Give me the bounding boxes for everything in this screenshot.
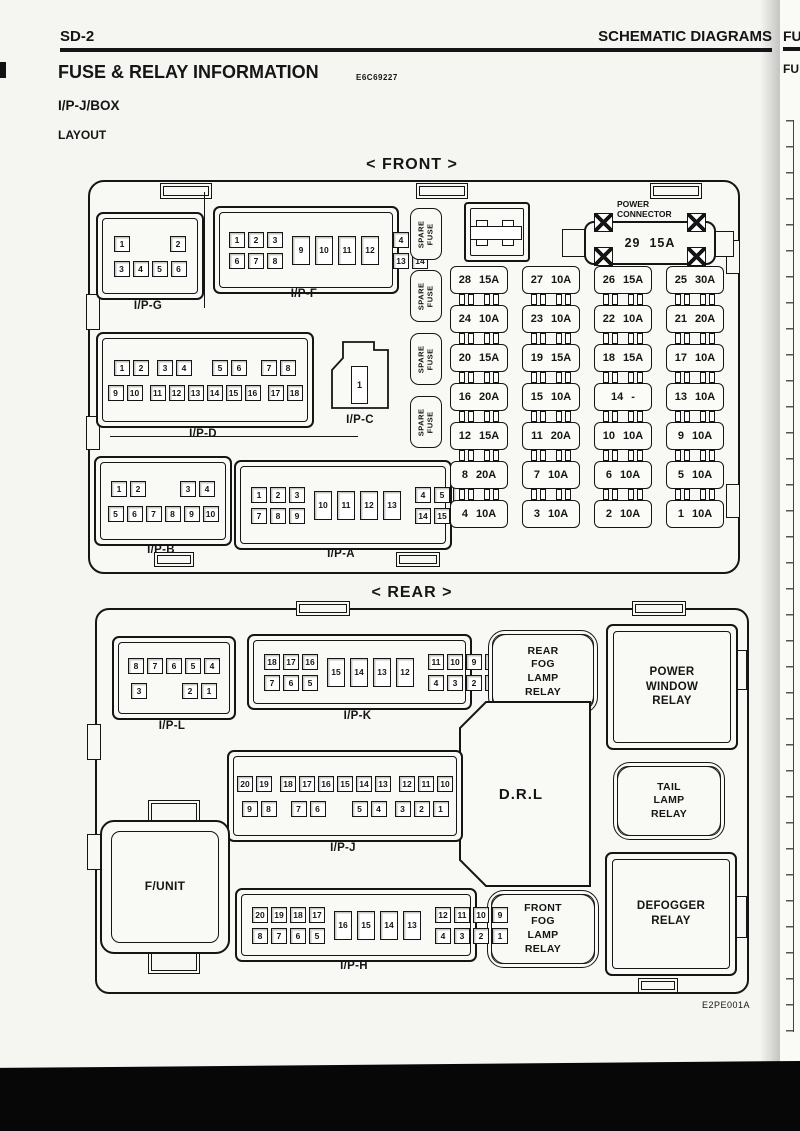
header-rule [60,48,772,52]
pin-8: 8 [252,928,268,944]
pin-14: 14 [380,911,398,940]
fuse-17: 1710A [666,344,724,372]
fuse-leg [603,333,618,344]
pin-5: 5 [108,506,124,522]
spare-fuse-label: SPARE FUSE [417,345,436,373]
fuse-column: 2530A2120A1710A1310A910A510A110A [666,266,724,528]
fuse-legs [666,450,724,461]
pin-10: 10 [315,236,333,265]
fuse-legs [522,489,580,500]
pin-14: 14 [415,508,431,524]
fuse-leg [484,372,499,383]
pin-3: 3 [395,801,411,817]
pin-12: 12 [399,776,415,792]
pin-5: 5 [185,658,201,674]
puller-bar [470,226,522,240]
pin-11: 11 [428,654,444,670]
power-connector-label: POWER CONNECTOR [617,199,672,219]
fuse-leg [531,333,546,344]
fuse-leg [700,333,715,344]
pin-4: 4 [176,360,192,376]
next-page-text-top: FU [783,28,800,44]
pin-5: 5 [302,675,318,691]
pin-9: 9 [466,654,482,670]
rear-bottom-tab [638,978,678,993]
pin-8: 8 [165,506,181,522]
fuse-leg [459,333,474,344]
fuse-leg [700,411,715,422]
fuse-legs [522,294,580,305]
pin-10: 10 [437,776,453,792]
pin-4: 4 [415,487,431,503]
fuse-1: 110A [666,500,724,528]
power-connector-value: 29 15A [625,235,676,251]
pin-5: 5 [152,261,168,277]
pin-13: 13 [393,253,409,269]
pin-2: 2 [133,360,149,376]
fuse-6: 610A [594,461,652,489]
connector-ipf: 123 678 9101112 45 1314 [213,206,399,294]
fuse-leg [675,372,690,383]
fuse-leg [459,294,474,305]
connector-ipl: 87654 3 21 [112,636,236,720]
fuse-leg [700,489,715,500]
fuse-legs [522,450,580,461]
fuse-leg [484,489,499,500]
pin-11: 11 [150,385,166,401]
pin-20: 20 [252,907,268,923]
pin-13: 13 [373,658,391,687]
pin-6: 6 [283,675,299,691]
fuse-leg [603,372,618,383]
pin-11: 11 [338,236,356,265]
fuse-leg [484,333,499,344]
fuse-11: 1120A [522,422,580,450]
connector-clip-icon [687,213,706,232]
fuse-leg [675,411,690,422]
fuse-15: 1510A [522,383,580,411]
fuse-leg [556,372,571,383]
fuse-leg [556,294,571,305]
mount-tab [396,552,440,567]
connector-ipk: 181716 765 15141312 111098 4321 [247,634,472,710]
fuse-leg [628,411,643,422]
connector-ipd: 12 34 56 78 910 111213141516 1718 [96,332,314,428]
pin-13: 13 [383,491,401,520]
pin-15: 15 [337,776,353,792]
pin-13: 13 [403,911,421,940]
fuse-leg [603,489,618,500]
fuse-legs [666,294,724,305]
fuse-legs [522,372,580,383]
fuse-leg [628,489,643,500]
fuse-23: 2310A [522,305,580,333]
fuse-legs [594,372,652,383]
funit-label: F/UNIT [145,879,185,895]
pin-9: 9 [108,385,124,401]
connector-label-ipl: I/P-L [112,720,232,732]
fuse-legs [594,333,652,344]
pin-6: 6 [310,801,326,817]
fuse-leg [531,372,546,383]
pin-3: 3 [131,683,147,699]
pin-4: 4 [393,232,409,248]
pin-6: 6 [290,928,306,944]
pin-16: 16 [302,654,318,670]
connector-clip-icon [687,247,706,266]
fuse-12: 1215A [450,422,508,450]
fuse-leg [628,333,643,344]
fuse-legs [450,489,508,500]
mount-tab [154,552,194,567]
pin-10: 10 [314,491,332,520]
pin-12: 12 [361,236,379,265]
fuse-20: 2015A [450,344,508,372]
pin-7: 7 [147,658,163,674]
pin-7: 7 [251,508,267,524]
pin-7: 7 [146,506,162,522]
fuse-leg [556,450,571,461]
pin-3: 3 [267,232,283,248]
fuse-leg [531,489,546,500]
fuse-leg [700,372,715,383]
pin-8: 8 [267,253,283,269]
pin-9: 9 [292,236,310,265]
fuse-3: 310A [522,500,580,528]
fuse-leg [700,450,715,461]
pin-11: 11 [337,491,355,520]
fuse-legs [666,372,724,383]
fuse-22: 2210A [594,305,652,333]
pin-5: 5 [352,801,368,817]
connector-label-ipd: I/P-D [96,428,310,440]
pin-17: 17 [283,654,299,670]
pin-8: 8 [280,360,296,376]
pin-20: 20 [237,776,253,792]
fuse-7: 710A [522,461,580,489]
fuse-21: 2120A [666,305,724,333]
pin-6: 6 [171,261,187,277]
divider-line [204,192,205,308]
connector-label-ipg: I/P-G [96,300,200,312]
figure-code: E2PE001A [640,1000,750,1010]
pin-18: 18 [290,907,306,923]
pin-7: 7 [248,253,264,269]
section-label: LAYOUT [58,128,106,142]
fuse-legs [666,489,724,500]
fuse-25: 2530A [666,266,724,294]
pin-18: 18 [280,776,296,792]
fuse-leg [459,489,474,500]
pin-2: 2 [248,232,264,248]
pin-18: 18 [287,385,303,401]
next-page-table-edge [786,120,794,1032]
pin-9: 9 [242,801,258,817]
spare-fuse-label: SPARE FUSE [417,220,436,248]
pin-9: 9 [184,506,200,522]
pin-14: 14 [207,385,223,401]
spare-fuse-slot: SPARE FUSE [410,270,442,322]
relay-defogger: DEFOGGER RELAY [605,852,737,976]
fuse-2: 210A [594,500,652,528]
pin-4: 4 [428,675,444,691]
fuse-legs [666,411,724,422]
pin-6: 6 [231,360,247,376]
doc-subtitle: I/P-J/BOX [58,98,120,113]
funit: F/UNIT [100,820,230,954]
spare-fuse-label: SPARE FUSE [417,282,436,310]
pin-2: 2 [414,801,430,817]
connector-ipj: 2019 181716151413 121110 98 76 54 321 [227,750,463,842]
pin-16: 16 [245,385,261,401]
fuse-leg [628,450,643,461]
pin-10: 10 [127,385,143,401]
pin-9: 9 [492,907,508,923]
relay-power-window-label: POWER WINDOW RELAY [646,665,698,710]
pin-2: 2 [170,236,186,252]
fuse-5: 510A [666,461,724,489]
pin-3: 3 [447,675,463,691]
fuse-9: 910A [666,422,724,450]
pin-17: 17 [268,385,284,401]
scan-edge-mark [0,62,6,78]
pin-11: 11 [454,907,470,923]
relay-defogger-label: DEFOGGER RELAY [637,899,705,929]
pin-2: 2 [130,481,146,497]
pin-9: 9 [289,508,305,524]
pin-10: 10 [473,907,489,923]
pin-1: 1 [351,366,368,404]
next-page-text-bottom: FU [783,62,799,76]
pin-2: 2 [466,675,482,691]
fuse-column: 2815A2410A2015A1620A1215A820A410A [450,266,508,528]
pin-16: 16 [318,776,334,792]
pin-4: 4 [435,928,451,944]
fuse-leg [603,411,618,422]
pin-15: 15 [434,508,450,524]
fuse-10: 1010A [594,422,652,450]
pin-3: 3 [289,487,305,503]
pin-8: 8 [270,508,286,524]
pin-3: 3 [157,360,173,376]
pin-3: 3 [180,481,196,497]
fuse-legs [450,333,508,344]
fuse-leg [603,450,618,461]
pin-10: 10 [447,654,463,670]
front-top-tab [650,183,702,199]
fuse-leg [531,450,546,461]
page-number: SD-2 [60,28,94,45]
pin-7: 7 [264,675,280,691]
pin-13: 13 [188,385,204,401]
fuse-leg [603,294,618,305]
pin-1: 1 [201,683,217,699]
fuse-18: 1815A [594,344,652,372]
fuse-27: 2710A [522,266,580,294]
fuse-24: 2410A [450,305,508,333]
pin-11: 11 [418,776,434,792]
pin-1: 1 [114,360,130,376]
pin-7: 7 [291,801,307,817]
fuse-legs [594,450,652,461]
pin-8: 8 [128,658,144,674]
fuse-14: 14- [594,383,652,411]
relay-front-fog-label: FRONT FOG LAMP RELAY [524,902,562,957]
pin-13: 13 [375,776,391,792]
fuse-legs [450,450,508,461]
spare-fuse-slot: SPARE FUSE [410,333,442,385]
fuse-column: 2710A2310A1915A1510A1120A710A310A [522,266,580,528]
pin-6: 6 [166,658,182,674]
fuse-leg [556,489,571,500]
pin-5: 5 [309,928,325,944]
connector-ipg: 12 3456 [96,212,204,300]
pin-1: 1 [251,487,267,503]
fuse-leg [459,411,474,422]
rear-left-tab [87,834,101,870]
fuse-legs [594,489,652,500]
fuse-leg [484,294,499,305]
pin-15: 15 [226,385,242,401]
pin-14: 14 [350,658,368,687]
pin-3: 3 [114,261,130,277]
connector-ipb: 12 34 5678910 [94,456,232,546]
pin-19: 19 [271,907,287,923]
fuse-legs [522,411,580,422]
fuse-leg [556,411,571,422]
scan-black-band [0,1061,800,1131]
fuse-leg [484,411,499,422]
connector-label-ipf: I/P-F [213,288,395,300]
fuse-legs [594,411,652,422]
fuse-leg [531,294,546,305]
fuse-leg [675,450,690,461]
relay-rear-fog-label: REAR FOG LAMP RELAY [525,645,561,700]
fuse-leg [700,294,715,305]
pin-1: 1 [229,232,245,248]
fuse-legs [594,294,652,305]
front-title: < FRONT > [300,156,524,174]
rear-top-tab [296,601,350,616]
pin-17: 17 [309,907,325,923]
connector-label-ipc: I/P-C [324,414,396,426]
fuse-leg [675,294,690,305]
pin-4: 4 [371,801,387,817]
pin-1: 1 [492,928,508,944]
connector-clip-icon [594,247,613,266]
fuse-16: 1620A [450,383,508,411]
fuse-leg [459,372,474,383]
pin-5: 5 [212,360,228,376]
pin-8: 8 [261,801,277,817]
pin-17: 17 [299,776,315,792]
fuse-legs [522,333,580,344]
spare-fuse-label: SPARE FUSE [417,408,436,436]
relay-tail-lamp-label: TAIL LAMP RELAY [651,781,687,822]
fuse-leg [531,411,546,422]
pin-6: 6 [127,506,143,522]
connector-iph: 20191817 8765 16151413 1211109 4321 [235,888,477,962]
pin-1: 1 [111,481,127,497]
doc-title: FUSE & RELAY INFORMATION [58,62,319,83]
rear-top-tab [632,601,686,616]
fuse-26: 2615A [594,266,652,294]
spare-fuse-slot: SPARE FUSE [410,208,442,260]
pin-4: 4 [199,481,215,497]
pin-12: 12 [435,907,451,923]
pin-4: 4 [204,658,220,674]
relay-tail-lamp: TAIL LAMP RELAY [613,762,725,840]
connector-label-ipj: I/P-J [227,842,459,854]
fuse-legs [450,372,508,383]
fuse-leg [675,333,690,344]
fuse-legs [666,333,724,344]
fuse-13: 1310A [666,383,724,411]
pin-6: 6 [229,253,245,269]
fuse-leg [459,450,474,461]
connector-label-iph: I/P-H [235,960,473,972]
rear-left-tab [87,724,101,760]
connector-label-ipk: I/P-K [247,710,468,722]
fuse-8: 820A [450,461,508,489]
relay-power-window: POWER WINDOW RELAY [606,624,738,750]
pin-12: 12 [360,491,378,520]
pin-3: 3 [454,928,470,944]
spare-fuse-slot: SPARE FUSE [410,396,442,448]
fuse-column: 2615A2210A1815A14-1010A610A210A [594,266,652,528]
fuse-leg [484,450,499,461]
fuse-4: 410A [450,500,508,528]
pin-19: 19 [256,776,272,792]
front-top-tab [416,183,468,199]
pin-10: 10 [203,506,219,522]
pin-2: 2 [473,928,489,944]
front-right-tab [726,484,740,518]
pin-14: 14 [356,776,372,792]
fuse-legs [450,411,508,422]
fuse-leg [628,294,643,305]
pin-4: 4 [133,261,149,277]
pin-7: 7 [271,928,287,944]
page-edge-shadow [760,0,780,1131]
scanned-manual-page: SD-2 SCHEMATIC DIAGRAMS FUSE & RELAY INF… [0,0,800,1131]
divider-line [110,436,358,437]
pin-1: 1 [433,801,449,817]
connector-ipa: 123 789 10111213 456 141516 [234,460,452,550]
fuse-19: 1915A [522,344,580,372]
connector-clip-icon [594,213,613,232]
pin-15: 15 [357,911,375,940]
pin-12: 12 [169,385,185,401]
pin-12: 12 [396,658,414,687]
pin-2: 2 [182,683,198,699]
fuse-grid: 2815A2410A2015A1620A1215A820A410A2710A23… [450,266,724,528]
fuse-leg [628,372,643,383]
pin-16: 16 [334,911,352,940]
next-page-rule [783,47,800,51]
pin-7: 7 [261,360,277,376]
drl-label: D.R.L [466,786,576,803]
rear-title: < REAR > [300,584,524,602]
pin-5: 5 [434,487,450,503]
pin-2: 2 [270,487,286,503]
fuse-leg [675,489,690,500]
fuse-legs [450,294,508,305]
pin-1: 1 [114,236,130,252]
fuse-leg [556,333,571,344]
pin-15: 15 [327,658,345,687]
fuse-28: 2815A [450,266,508,294]
